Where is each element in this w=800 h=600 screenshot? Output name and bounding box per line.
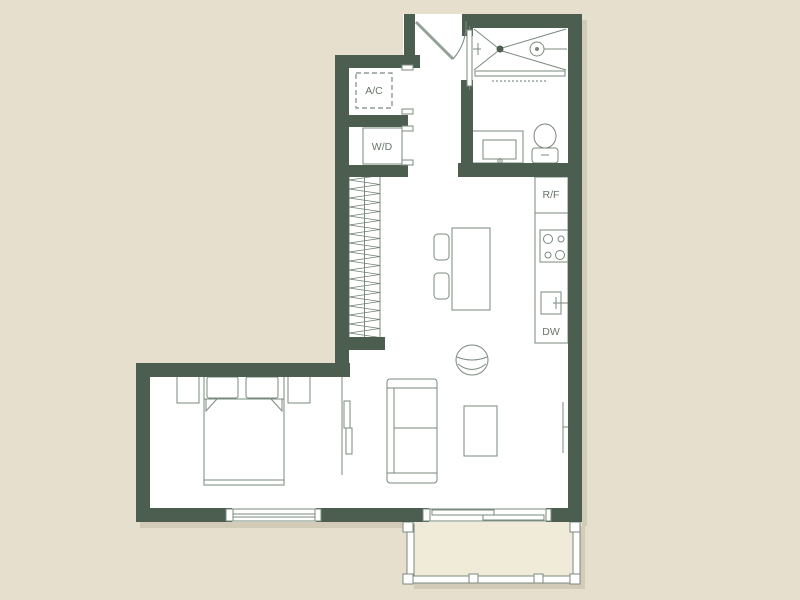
balcony-sliding-door xyxy=(423,509,551,521)
floor-plan-page: A/C W/D xyxy=(0,0,800,600)
vanity xyxy=(467,131,523,166)
balcony-post xyxy=(469,574,478,583)
wall-bottom-left xyxy=(136,508,232,522)
kitchen-island xyxy=(452,228,490,310)
nightstand xyxy=(288,375,310,403)
bedroom-window xyxy=(226,509,321,521)
wall-ac-wd-divider xyxy=(349,115,408,127)
shadow-right xyxy=(582,20,587,526)
balcony-post xyxy=(403,522,413,532)
door-jamb-cap xyxy=(402,126,413,131)
nightstand xyxy=(177,375,199,403)
closet xyxy=(349,171,380,338)
dishwasher-label: DW xyxy=(542,326,560,338)
stool xyxy=(434,234,449,260)
door-jamb-cap xyxy=(402,160,413,165)
window-frame xyxy=(233,509,315,521)
balcony-post xyxy=(570,522,580,532)
partition-panel xyxy=(344,401,350,428)
window-jamb-cap xyxy=(226,509,233,521)
toilet-bowl xyxy=(534,124,556,148)
door-jamb-cap xyxy=(402,65,413,70)
balcony-post xyxy=(403,574,413,584)
coffee-table xyxy=(464,406,497,456)
shower-head-center xyxy=(535,47,539,51)
pocket-door-panel xyxy=(467,30,472,86)
door-jamb-cap xyxy=(402,109,413,114)
balcony-post xyxy=(534,574,543,583)
armchair xyxy=(456,345,488,375)
shadow-balcony-bottom xyxy=(414,583,585,589)
floor-plan: A/C W/D xyxy=(0,0,800,600)
shadow-bottom xyxy=(140,522,412,528)
toilet xyxy=(532,124,558,163)
pillow xyxy=(207,377,238,398)
slider-panel xyxy=(483,515,544,520)
ac-label: A/C xyxy=(365,85,383,97)
wall-bedroom-top xyxy=(136,363,350,377)
wall-right xyxy=(568,14,582,522)
wall-left-upper xyxy=(335,55,349,377)
wall-closet-bottom xyxy=(335,337,385,350)
wall-bathroom-left xyxy=(461,80,473,177)
shower-glass-panel xyxy=(475,71,565,76)
bed xyxy=(204,375,284,485)
wall-bedroom-left xyxy=(136,363,150,522)
stool xyxy=(434,273,449,299)
shadow-balcony-right xyxy=(580,526,585,583)
wall-top xyxy=(462,14,582,28)
shower-drain xyxy=(497,46,504,53)
bathroom-pocket-door xyxy=(467,26,472,90)
door-jamb-cap xyxy=(423,509,430,521)
fridge-label: R/F xyxy=(543,189,560,201)
balcony-post xyxy=(570,574,580,584)
balcony-rail-bottom xyxy=(407,576,580,583)
wall-bottom-middle xyxy=(316,508,429,522)
bathroom-sink xyxy=(483,140,516,159)
wd-label: W/D xyxy=(372,141,393,153)
balcony xyxy=(403,522,580,584)
partition-panel xyxy=(346,428,352,454)
sofa xyxy=(387,379,437,483)
pillow xyxy=(246,377,278,398)
slider-panel xyxy=(432,510,494,515)
wall-below-wd xyxy=(335,165,408,177)
balcony-floor xyxy=(410,522,577,580)
wall-bathroom-bottom xyxy=(458,163,582,177)
